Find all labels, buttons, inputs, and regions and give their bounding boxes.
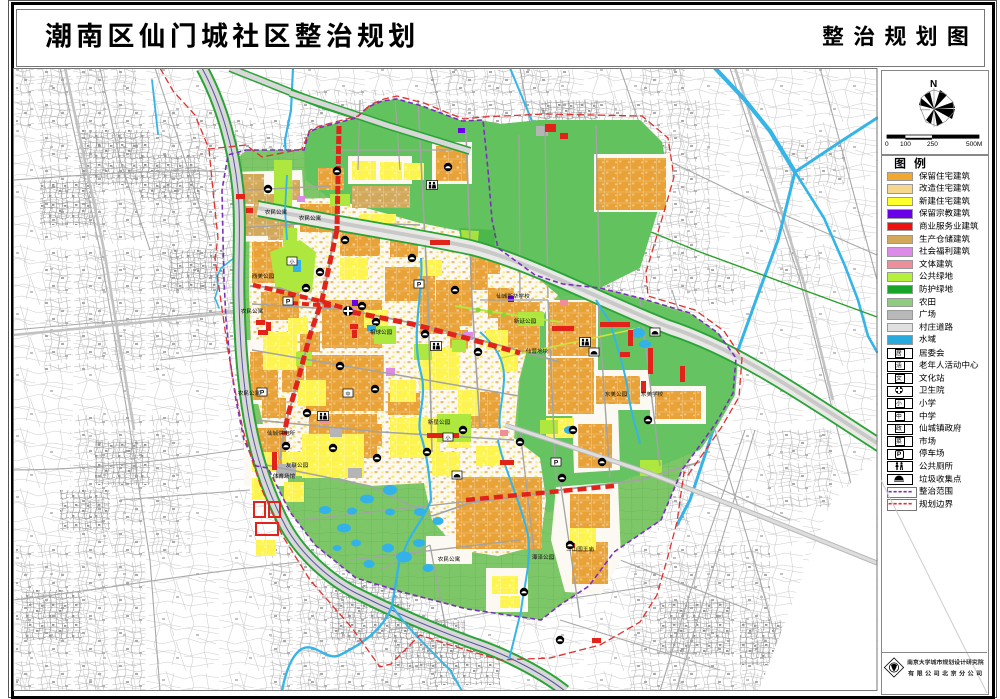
svg-text:250: 250	[927, 141, 938, 147]
svg-text:500M: 500M	[966, 141, 982, 147]
svg-text:P: P	[554, 460, 559, 467]
svg-text:100: 100	[900, 141, 911, 147]
svg-text:P: P	[260, 390, 265, 397]
svg-text:0: 0	[885, 141, 889, 147]
svg-text:P: P	[286, 299, 291, 306]
svg-text:P: P	[417, 282, 422, 289]
svg-text:N: N	[930, 79, 937, 90]
